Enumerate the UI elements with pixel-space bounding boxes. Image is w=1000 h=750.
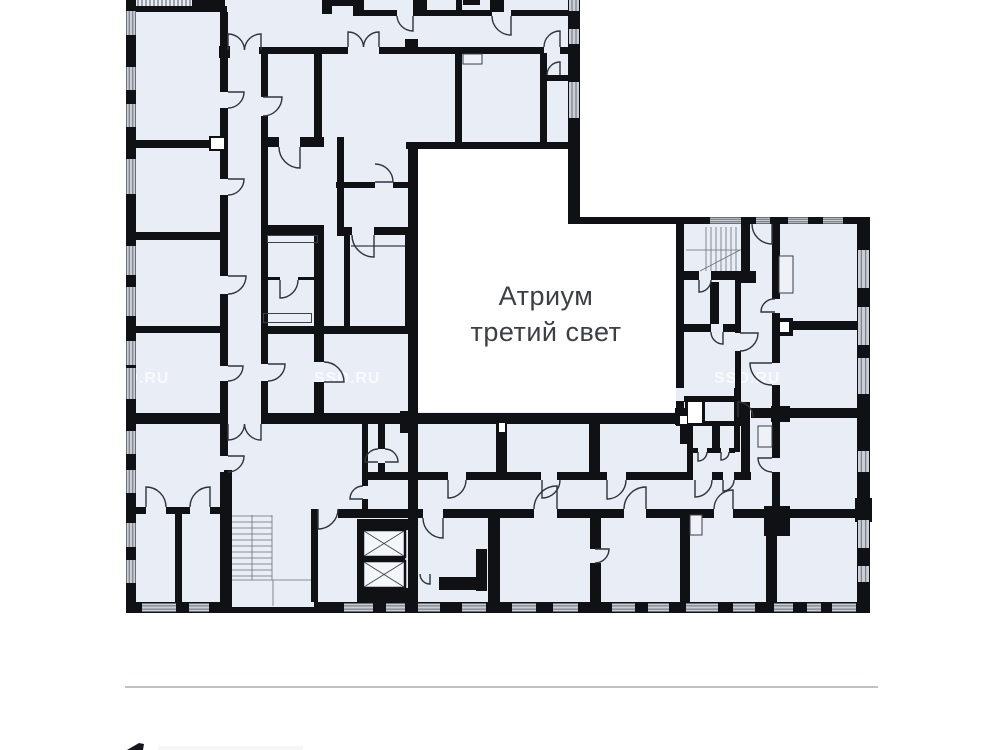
- svg-text:Атриум: Атриум: [499, 281, 594, 311]
- svg-text:SSD.RU: SSD.RU: [103, 370, 169, 387]
- svg-text:третий свет: третий свет: [470, 317, 621, 347]
